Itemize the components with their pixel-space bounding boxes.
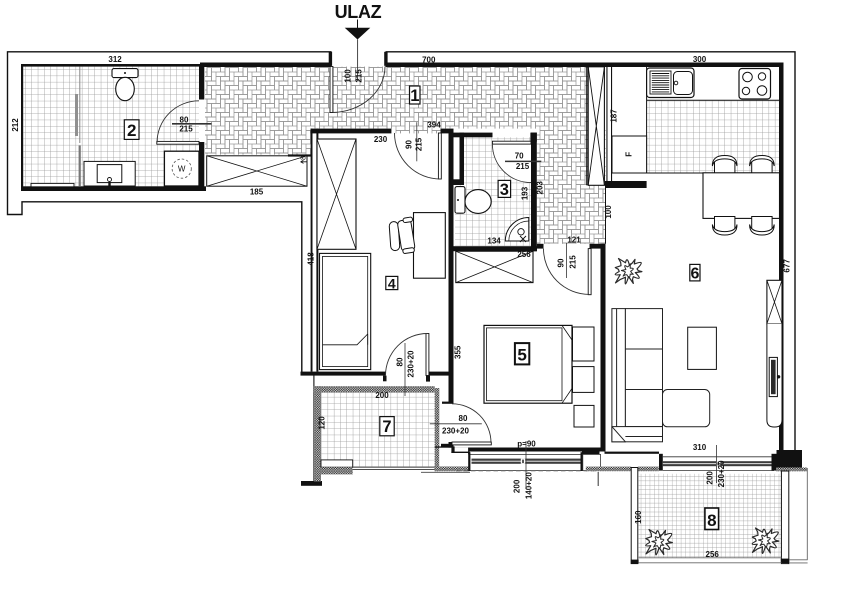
svg-text:134: 134 — [487, 237, 501, 246]
svg-text:ULAZ: ULAZ — [335, 2, 382, 22]
svg-text:215: 215 — [516, 162, 530, 171]
svg-text:300: 300 — [693, 55, 707, 64]
svg-text:230+20: 230+20 — [442, 426, 469, 435]
svg-text:140+20: 140+20 — [525, 472, 534, 499]
svg-text:200: 200 — [513, 479, 522, 493]
svg-text:120: 120 — [318, 416, 327, 430]
svg-text:90: 90 — [557, 258, 566, 267]
svg-text:90: 90 — [405, 140, 414, 149]
svg-text:100: 100 — [344, 69, 353, 83]
svg-text:8: 8 — [707, 511, 716, 530]
svg-text:418: 418 — [307, 252, 316, 266]
svg-text:80: 80 — [459, 414, 468, 423]
svg-text:215: 215 — [569, 255, 578, 269]
svg-text:212: 212 — [11, 118, 20, 132]
svg-text:3: 3 — [500, 181, 509, 199]
svg-text:215: 215 — [415, 137, 424, 151]
svg-text:p=90: p=90 — [517, 439, 536, 448]
svg-text:8: 8 — [301, 156, 308, 160]
svg-text:2: 2 — [127, 121, 136, 140]
svg-text:394: 394 — [427, 120, 441, 129]
svg-text:312: 312 — [108, 55, 122, 64]
svg-text:203: 203 — [536, 181, 545, 195]
svg-text:355: 355 — [454, 345, 463, 359]
svg-text:187: 187 — [610, 109, 619, 123]
svg-text:230+20: 230+20 — [717, 460, 726, 487]
svg-text:160: 160 — [634, 510, 643, 524]
svg-text:677: 677 — [783, 259, 792, 273]
svg-text:F: F — [625, 152, 634, 157]
svg-text:6: 6 — [690, 265, 699, 282]
svg-text:200: 200 — [706, 471, 715, 485]
svg-text:256: 256 — [517, 250, 531, 259]
svg-text:4: 4 — [388, 275, 396, 291]
svg-text:185: 185 — [250, 187, 264, 196]
svg-text:200: 200 — [375, 391, 389, 400]
svg-text:1: 1 — [410, 87, 419, 105]
svg-text:193: 193 — [521, 186, 530, 200]
svg-text:230+20: 230+20 — [407, 350, 416, 377]
svg-text:80: 80 — [396, 357, 405, 366]
svg-text:310: 310 — [693, 443, 707, 452]
svg-text:7: 7 — [382, 418, 391, 436]
svg-text:230: 230 — [374, 135, 388, 144]
svg-text:215: 215 — [355, 69, 364, 83]
svg-text:256: 256 — [706, 550, 720, 559]
svg-text:5: 5 — [517, 346, 526, 365]
svg-text:W: W — [178, 164, 186, 173]
svg-text:100: 100 — [604, 205, 613, 219]
svg-text:121: 121 — [567, 235, 581, 244]
svg-text:700: 700 — [422, 56, 436, 65]
svg-text:215: 215 — [179, 125, 193, 134]
svg-text:70: 70 — [515, 152, 524, 161]
